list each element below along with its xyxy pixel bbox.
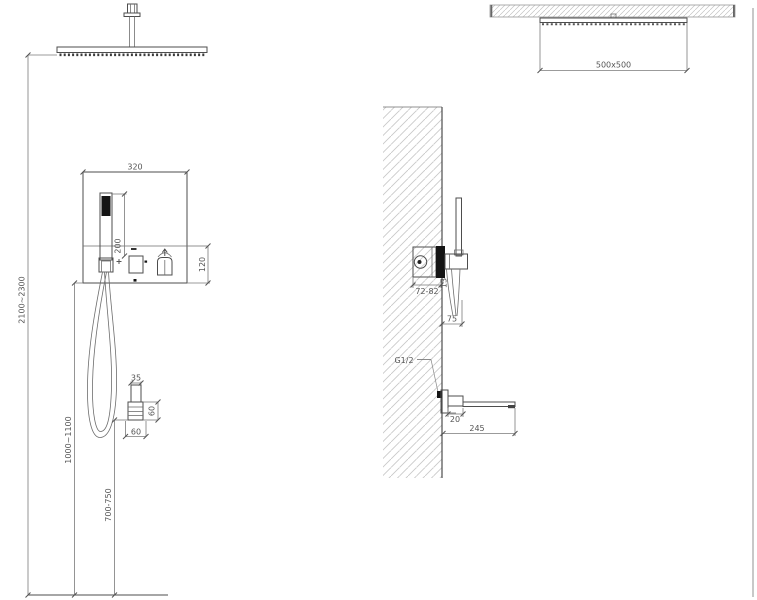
dim-valve-height: 1000~1100 <box>64 416 73 463</box>
rain-shower-head-front <box>57 4 207 55</box>
spout-body <box>128 402 143 420</box>
dim-panel-lower-height: 120 <box>198 257 207 272</box>
dim-spout-body-width: 60 <box>131 428 141 437</box>
dot-right <box>145 261 148 263</box>
spout-neck <box>131 385 141 402</box>
hand-shower-front <box>87 193 116 438</box>
spout-outlet-end <box>508 405 515 408</box>
dim-spout-body-height: 60 <box>148 406 157 416</box>
hose-side-line <box>457 269 460 316</box>
ceiling-end-tick <box>733 5 735 17</box>
ceiling-mount-box <box>128 4 138 13</box>
installation-drawing: 2100~2300 320 120 200 <box>0 0 757 600</box>
thread-label: G1/2 <box>394 356 413 365</box>
ceiling-end-tick <box>491 5 493 17</box>
shower-hose-inner <box>92 272 111 432</box>
head-plate-side <box>540 18 687 23</box>
dim-trim-thickness: 13 <box>440 278 449 288</box>
front-view: 2100~2300 320 120 200 <box>18 4 211 595</box>
spout-block <box>448 396 463 406</box>
plus-mark <box>117 259 122 264</box>
ceiling-hatch <box>490 5 735 17</box>
handshower-rod-side <box>456 198 462 256</box>
dim-handshower-height: 200 <box>114 238 123 253</box>
head-plate <box>57 47 207 53</box>
side-view: 500x500 72-82 13 <box>383 5 735 478</box>
spout-front <box>128 385 143 420</box>
mount-flange <box>124 13 140 17</box>
hose-side-line <box>452 269 457 316</box>
handshower-face <box>102 196 111 216</box>
handshower-side <box>445 198 468 316</box>
dim-head-size: 500x500 <box>596 61 631 70</box>
dot-below <box>134 279 137 282</box>
dim-overall-height: 2100~2300 <box>18 276 27 323</box>
dim-valve-depth: 72-82 <box>415 287 438 296</box>
dim-panel-width: 320 <box>127 163 142 172</box>
arrow-up-icon <box>162 249 167 256</box>
handshower-connector-inner <box>102 261 111 272</box>
spout-side <box>437 390 515 413</box>
trim-plate <box>436 246 445 278</box>
drawing-svg: 2100~2300 320 120 200 <box>0 0 757 600</box>
dim-holder-projection: 75 <box>447 315 457 324</box>
valve-cartridge-center <box>418 260 422 264</box>
dim-spout-drop: 20 <box>450 415 460 424</box>
spout-blade <box>463 402 515 407</box>
dimension-ticks <box>26 53 690 598</box>
dim-spout-length: 245 <box>469 424 484 433</box>
temperature-button <box>129 256 143 273</box>
dim-spout-height: 700-750 <box>104 488 113 521</box>
